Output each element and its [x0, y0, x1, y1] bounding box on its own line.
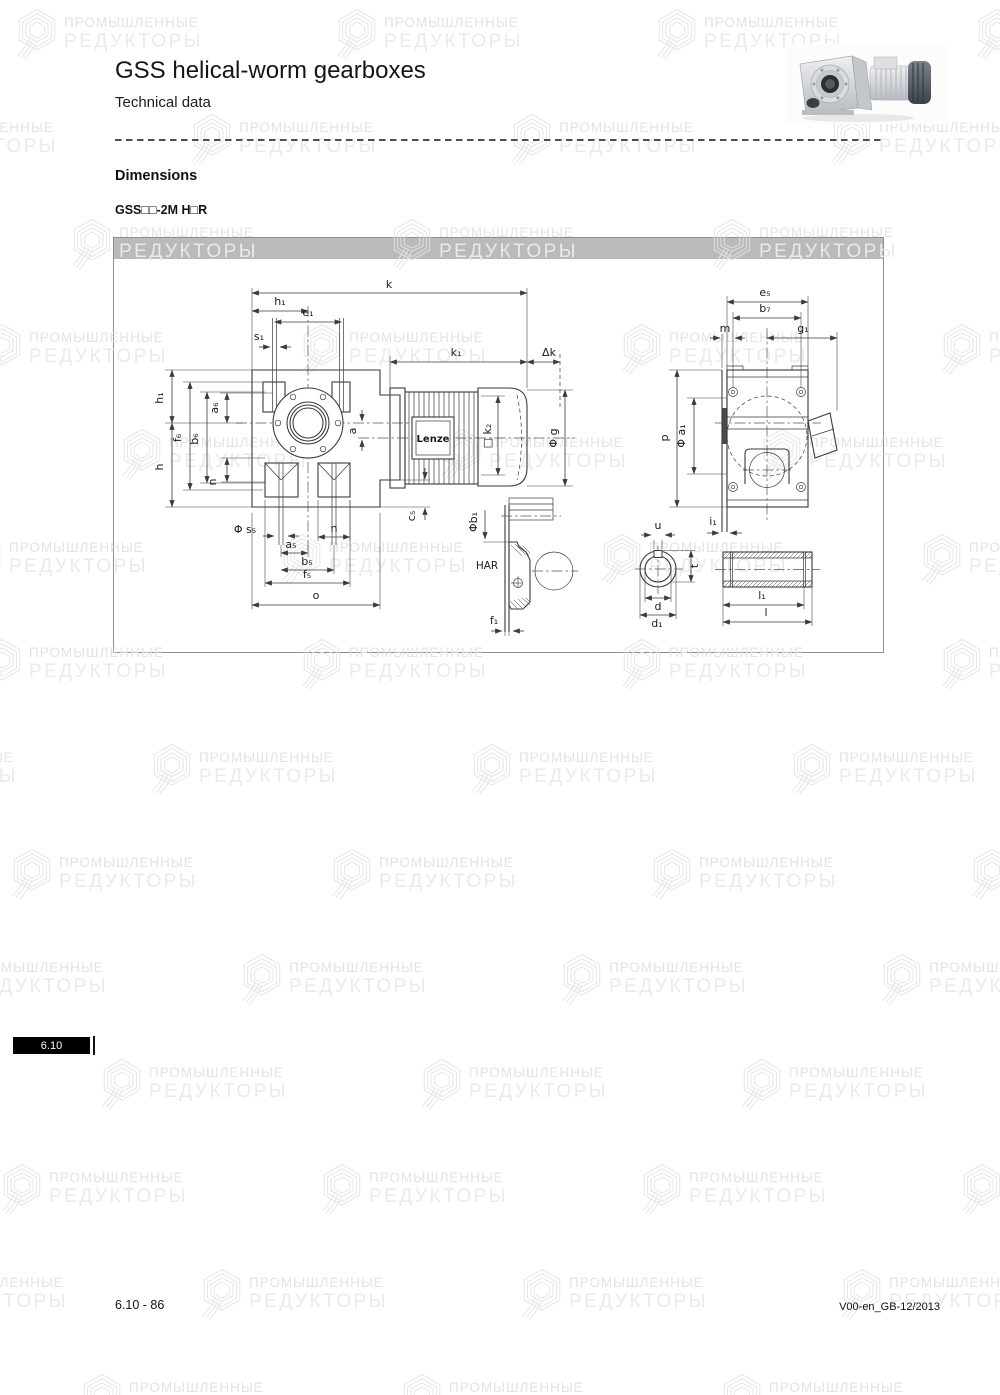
page: ПРОМЫШЛЕННЫЕРЕДУКТОРЫПРОМЫШЛЕННЫЕРЕДУКТО…: [0, 0, 1000, 1395]
content-layer: GSS helical-worm gearboxes Technical dat…: [0, 0, 1000, 1395]
dim-label-n-bottom: n: [331, 522, 338, 535]
page-title: GSS helical-worm gearboxes: [115, 57, 426, 85]
page-subtitle: Technical data: [115, 94, 211, 111]
dim-label-h1-top: h₁: [274, 295, 285, 308]
dim-label-u: u: [655, 519, 662, 532]
hollow-shaft-detail: u t d d₁ l₁ l: [635, 519, 820, 630]
dim-label-h1-left: h₁: [153, 392, 166, 403]
dim-label-har: HAR: [476, 560, 498, 572]
dim-label-s1: s₁: [254, 330, 264, 343]
dim-label-t: t: [688, 563, 701, 568]
dim-label-f6: f₆: [171, 433, 184, 442]
dim-label-i1: i₁: [709, 515, 716, 528]
dim-label-k: k: [386, 278, 393, 291]
dim-label-a6: a₆: [208, 402, 221, 414]
dim-label-dk: Δk: [542, 346, 557, 359]
gearbox-product-photo: [786, 44, 948, 129]
variant-label: GSS□□-2M H□R: [115, 203, 207, 217]
dim-label-e1: e₁: [302, 306, 313, 319]
dim-label-o: o: [313, 589, 320, 602]
gearbox-photo-illustration: [786, 44, 948, 124]
dimension-drawing: Lenze k h₁ e₁ s₁ k₁ Δk: [113, 258, 884, 653]
section-tab-label: 6.10: [41, 1040, 62, 1052]
dashed-divider: [115, 139, 883, 141]
dim-label-l: l: [764, 606, 767, 619]
dim-label-k2: □ k₂: [481, 424, 494, 449]
dim-label-a5: a₅: [285, 538, 296, 551]
dim-label-a: a: [346, 428, 359, 435]
document-code: V00-en_GB-12/2013: [839, 1301, 940, 1313]
dim-label-c5: c₅: [405, 511, 418, 521]
dim-label-g1: g₁: [797, 322, 808, 335]
dim-label-e5: e₅: [759, 286, 770, 299]
dim-label-a1: Φ a₁: [675, 424, 688, 447]
dim-label-d: d: [655, 600, 662, 613]
section-heading: Dimensions: [115, 168, 197, 184]
dim-label-h: h: [153, 463, 166, 470]
section-tab: 6.10: [13, 1037, 90, 1054]
side-view: [715, 328, 837, 532]
motor-brand-label: Lenze: [417, 434, 450, 445]
dim-label-b5: b₅: [301, 555, 312, 568]
dim-label-s5: Φ s₅: [234, 523, 256, 536]
dim-label-k1: k₁: [451, 346, 462, 359]
dim-label-g: Φ g: [547, 428, 560, 447]
har-detail-view: Φb₁ HAR f₁: [467, 498, 578, 636]
dim-label-f1: f₁: [490, 614, 498, 627]
dim-label-d1: d₁: [651, 617, 662, 630]
dim-label-b6: b₆: [188, 433, 201, 445]
dim-label-l1: l₁: [758, 589, 765, 602]
front-view-dimensions: k h₁ e₁ s₁ k₁ Δk h₁ h f₆: [153, 278, 573, 609]
dim-label-m: m: [720, 322, 731, 335]
dim-label-p: p: [658, 434, 671, 441]
dim-label-n-left: n: [206, 478, 219, 485]
page-number: 6.10 - 86: [115, 1298, 164, 1312]
dim-label-b1: Φb₁: [467, 512, 480, 532]
side-view-dimensions: e₅ b₇ m g₁ p Φ a₁ i₁: [658, 286, 837, 533]
dim-label-b7: b₇: [759, 302, 770, 315]
dim-label-f5: f₅: [303, 568, 311, 581]
